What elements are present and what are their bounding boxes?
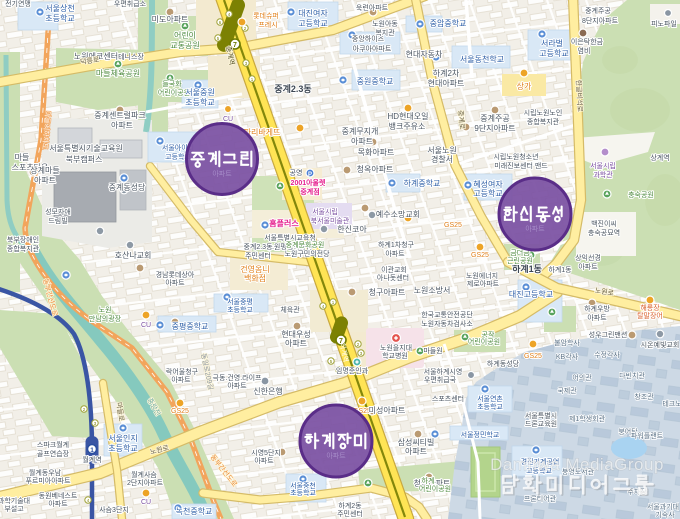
svg-text:서울중천: 서울중천 [290, 481, 316, 490]
svg-text:삼성씨티빌: 삼성씨티빌 [398, 437, 435, 447]
svg-text:서라벌: 서라벌 [541, 38, 563, 48]
svg-text:상익선경: 상익선경 [575, 253, 601, 262]
svg-text:아파트: 아파트 [165, 278, 185, 287]
svg-text:기숙사: 기숙사 [655, 510, 675, 519]
svg-text:만남의광장: 만남의광장 [89, 314, 122, 323]
svg-text:동원베네스트: 동원베네스트 [39, 491, 78, 500]
svg-text:서울연촌: 서울연촌 [477, 394, 503, 403]
svg-text:프레시: 프레시 [258, 20, 277, 29]
svg-text:제1학생회관: 제1학생회관 [569, 414, 606, 423]
svg-text:월계사슴: 월계사슴 [131, 470, 157, 479]
svg-text:아파트: 아파트 [48, 499, 68, 508]
svg-text:피노파일: 피노파일 [651, 19, 677, 28]
svg-text:아파트: 아파트 [578, 262, 598, 271]
svg-text:백진이씨: 백진이씨 [591, 219, 617, 228]
svg-text:파워플랜트: 파워플랜트 [631, 431, 664, 440]
svg-text:미성아파트: 미성아파트 [369, 405, 406, 415]
svg-text:한국교통안전공단: 한국교통안전공단 [421, 310, 473, 319]
svg-text:드론교육원: 드론교육원 [525, 419, 557, 428]
svg-text:P: P [308, 172, 312, 178]
svg-text:북부장애인: 북부장애인 [7, 235, 39, 244]
svg-text:전기연맹: 전기연맹 [5, 0, 31, 8]
svg-text:마들원: 마들원 [423, 346, 442, 355]
svg-text:사슴3단지: 사슴3단지 [99, 505, 129, 514]
svg-text:혜성여자: 혜성여자 [473, 179, 503, 189]
svg-text:중계점: 중계점 [300, 187, 319, 196]
svg-text:아파트: 아파트 [525, 224, 545, 233]
svg-text:어린이: 어린이 [174, 30, 196, 40]
svg-text:극동.건영.라이프: 극동.건영.라이프 [213, 373, 263, 382]
svg-text:대진고등학교: 대진고등학교 [509, 289, 553, 299]
svg-text:녹천중학교: 녹천중학교 [176, 506, 213, 516]
svg-text:7: 7 [233, 42, 237, 49]
svg-text:과학관: 과학관 [593, 170, 613, 179]
svg-text:KB각사: KB각사 [556, 352, 579, 361]
svg-text:스포츠센터: 스포츠센터 [432, 394, 464, 403]
svg-text:중암중학교: 중암중학교 [430, 18, 467, 28]
svg-text:종합복지관: 종합복지관 [527, 117, 560, 126]
svg-text:시영5단지: 시영5단지 [251, 448, 281, 457]
svg-text:들국화: 들국화 [162, 80, 182, 88]
svg-text:수정각사: 수정각사 [594, 350, 620, 359]
svg-text:종합복지관: 종합복지관 [7, 244, 40, 253]
svg-text:충숙공원: 충숙공원 [628, 190, 654, 199]
svg-text:서울과기대: 서울과기대 [647, 502, 679, 511]
svg-text:백화점: 백화점 [244, 273, 266, 283]
svg-text:주민센터: 주민센터 [245, 251, 271, 260]
svg-text:초등학교: 초등학교 [227, 305, 253, 314]
svg-text:GS25: GS25 [524, 353, 542, 360]
svg-text:노원소방서: 노원소방서 [414, 285, 451, 295]
svg-text:청구아파트: 청구아파트 [369, 287, 406, 297]
svg-text:아파트: 아파트 [405, 446, 427, 456]
svg-text:이은탁한금: 이은탁한금 [571, 37, 604, 46]
svg-text:고등학교: 고등학교 [298, 18, 327, 28]
svg-text:CU: CU [223, 116, 233, 123]
svg-text:서울중평: 서울중평 [227, 297, 253, 306]
svg-text:서울특별시기술교육원: 서울특별시기술교육원 [49, 143, 123, 153]
svg-text:초등학교: 초등학교 [185, 97, 214, 107]
svg-text:1: 1 [90, 447, 94, 454]
svg-text:미래진보센터 맨드: 미래진보센터 맨드 [494, 161, 548, 170]
svg-text:마들체육공원: 마들체육공원 [96, 68, 140, 78]
svg-text:아파트: 아파트 [326, 451, 346, 460]
svg-text:중평중학교: 중평중학교 [172, 321, 209, 331]
svg-text:중계문화공원: 중계문화공원 [286, 240, 325, 249]
svg-text:호산나교회: 호산나교회 [115, 250, 152, 260]
svg-text:하계: 하계 [422, 476, 435, 485]
svg-text:노원을지대: 노원을지대 [380, 343, 412, 352]
svg-text:Damhwa MediaGroup: Damhwa MediaGroup [490, 455, 664, 474]
svg-text:근린공원: 근린공원 [507, 256, 533, 265]
svg-text:CU: CU [141, 322, 151, 329]
svg-text:욱련아파트: 욱련아파트 [356, 3, 389, 12]
svg-text:부설고: 부설고 [4, 505, 24, 513]
svg-text:아파트: 아파트 [254, 456, 274, 465]
svg-text:프론티어관: 프론티어관 [524, 494, 557, 503]
svg-text:아파트: 아파트 [227, 381, 247, 390]
svg-text:아나돗센터: 아나돗센터 [377, 273, 409, 282]
svg-text:서울특별시교육청: 서울특별시교육청 [264, 233, 316, 242]
svg-text:중계센트럴파크: 중계센트럴파크 [94, 110, 146, 120]
svg-text:하계1동: 하계1동 [548, 265, 572, 274]
svg-text:충숙공묘역: 충숙공묘역 [588, 228, 620, 237]
svg-text:시립노원노인: 시립노원노인 [524, 108, 563, 117]
svg-text:고등학교: 고등학교 [539, 48, 568, 58]
svg-text:8단지아파트: 8단지아파트 [582, 16, 619, 25]
svg-text:시립노원청소년: 시립노원청소년 [493, 152, 538, 161]
svg-text:서울정민학교: 서울정민학교 [461, 430, 500, 439]
svg-text:이관교회: 이관교회 [381, 265, 407, 274]
svg-text:해룡장: 해룡장 [640, 303, 660, 312]
svg-text:중계2.3동: 중계2.3동 [274, 83, 311, 94]
svg-text:아파트: 아파트 [285, 338, 307, 348]
svg-text:창조관: 창조관 [634, 392, 654, 401]
svg-text:공작: 공작 [482, 330, 495, 339]
svg-text:한신코아: 한신코아 [337, 224, 367, 234]
svg-text:성우그린맨션: 성우그린맨션 [589, 330, 628, 339]
svg-text:9단지아파트: 9단지아파트 [474, 123, 515, 133]
svg-text:월계동우남: 월계동우남 [29, 468, 62, 477]
svg-text:아파트: 아파트 [34, 175, 56, 185]
svg-text:현대자동차: 현대자동차 [406, 50, 443, 59]
svg-text:스파크월계: 스파크월계 [37, 440, 69, 449]
svg-text:GS25: GS25 [471, 252, 489, 259]
svg-text:중계주공: 중계주공 [585, 6, 611, 15]
svg-text:노원에너지: 노원에너지 [466, 271, 498, 280]
svg-text:과학기술대: 과학기술대 [0, 496, 30, 505]
svg-text:임명준인과: 임명준인과 [336, 366, 369, 375]
svg-text:GS25: GS25 [444, 222, 462, 229]
svg-text:하계우방: 하계우방 [584, 304, 610, 313]
svg-text:하계2차: 하계2차 [433, 68, 460, 78]
svg-text:아파트: 아파트 [587, 313, 607, 322]
svg-text:청옥아파트: 청옥아파트 [357, 164, 394, 174]
svg-text:노원: 노원 [99, 305, 112, 314]
svg-text:어린이공원: 어린이공원 [419, 484, 451, 493]
svg-text:월계역: 월계역 [82, 455, 101, 464]
svg-text:학교병원: 학교병원 [382, 351, 408, 360]
svg-text:상가: 상가 [517, 81, 532, 91]
svg-text:서울하계시영: 서울하계시영 [424, 367, 463, 376]
svg-text:노원구민의전당: 노원구민의전당 [284, 249, 330, 258]
svg-text:상계마들: 상계마들 [30, 165, 59, 175]
svg-text:중계주공: 중계주공 [480, 113, 509, 123]
svg-text:서울노원: 서울노원 [427, 146, 456, 155]
svg-text:체육관: 체육관 [280, 305, 300, 314]
svg-text:노원자동차검사소: 노원자동차검사소 [421, 319, 473, 328]
svg-text:초등학교: 초등학교 [45, 13, 74, 23]
svg-text:경남롯데상아: 경남롯데상아 [156, 270, 195, 279]
svg-text:현대우성: 현대우성 [281, 330, 310, 339]
svg-text:하계2동: 하계2동 [338, 501, 362, 510]
svg-text:시온예빛교회: 시온예빛교회 [641, 340, 680, 349]
svg-text:서울인지: 서울인지 [108, 433, 137, 443]
svg-text:중계동성당: 중계동성당 [109, 182, 146, 192]
svg-text:2단지아파트: 2단지아파트 [127, 478, 164, 487]
svg-text:건영옴니: 건영옴니 [240, 264, 269, 274]
svg-text:중계무지개: 중계무지개 [342, 126, 379, 136]
svg-text:다빈치관: 다빈치관 [619, 371, 645, 380]
svg-text:초등학교: 초등학교 [477, 402, 503, 411]
svg-text:제로아파트: 제로아파트 [467, 279, 500, 288]
svg-text:중계2.3동: 중계2.3동 [243, 242, 273, 251]
svg-text:초등학교: 초등학교 [290, 488, 316, 497]
svg-text:교통공원: 교통공원 [170, 41, 199, 50]
svg-text:예수소망교회: 예수소망교회 [376, 209, 420, 219]
svg-text:푸르미아아파트: 푸르미아아파트 [25, 476, 71, 485]
svg-text:롯데슈퍼: 롯데슈퍼 [253, 11, 279, 20]
svg-text:드림빌: 드림빌 [48, 217, 67, 225]
svg-text:현대아파트: 현대아파트 [428, 78, 465, 88]
svg-text:어의관: 어의관 [572, 373, 592, 382]
svg-text:홈플러스: 홈플러스 [269, 218, 299, 228]
svg-text:노원아동: 노원아동 [372, 19, 398, 28]
svg-text:공영: 공영 [290, 168, 303, 177]
svg-text:아파트: 아파트 [171, 375, 191, 384]
svg-text:골프연습장: 골프연습장 [37, 449, 70, 458]
svg-text:북부캠퍼스: 북부캠퍼스 [66, 154, 103, 164]
svg-text:테니스장: 테니스장 [118, 52, 144, 61]
svg-text:대진여자: 대진여자 [298, 8, 328, 18]
svg-text:미도아파트: 미도아파트 [152, 14, 189, 24]
svg-text:아파트: 아파트 [111, 120, 133, 130]
svg-text:서울특별시: 서울특별시 [525, 411, 557, 420]
svg-text:국제관: 국제관 [557, 386, 577, 395]
svg-text:목화아파트: 목화아파트 [358, 147, 395, 157]
svg-text:아파트: 아파트 [385, 249, 405, 258]
svg-text:GS25: GS25 [171, 408, 189, 415]
svg-text:락어울청구: 락어울청구 [166, 367, 199, 376]
svg-text:신한은행: 신한은행 [253, 386, 282, 396]
svg-text:우편취급소: 우편취급소 [114, 0, 147, 8]
svg-text:북서울미술관: 북서울미술관 [311, 216, 350, 225]
svg-text:아파트: 아파트 [351, 136, 373, 146]
svg-text:주민센터: 주민센터 [337, 509, 363, 518]
svg-text:상계역: 상계역 [650, 153, 669, 162]
svg-text:하계동성당: 하계동성당 [487, 359, 520, 368]
svg-text:성모자애: 성모자애 [45, 207, 71, 216]
svg-text:복지관: 복지관 [375, 28, 395, 37]
svg-text:2001아울렛: 2001아울렛 [291, 178, 326, 187]
svg-text:초등학교: 초등학교 [108, 443, 137, 453]
svg-text:하계중학교: 하계중학교 [404, 178, 441, 188]
svg-text:서울시립: 서울시립 [312, 207, 338, 216]
svg-text:경찰서: 경찰서 [431, 154, 453, 164]
svg-text:중원중학교: 중원중학교 [357, 76, 394, 86]
svg-text:서울동천학교: 서울동천학교 [460, 54, 504, 64]
svg-text:아쿠아아파트: 아쿠아아파트 [353, 44, 392, 53]
svg-text:서울중원: 서울중원 [185, 88, 214, 97]
svg-text:HD현대오일: HD현대오일 [388, 112, 429, 121]
svg-text:테크노: 테크노 [662, 400, 680, 408]
svg-text:뱅크주유소: 뱅크주유소 [389, 121, 426, 131]
svg-text:CU: CU [141, 499, 151, 506]
svg-text:서울시립: 서울시립 [590, 161, 616, 170]
svg-text:하계1차청구: 하계1차청구 [378, 240, 415, 249]
svg-text:어린이공원: 어린이공원 [468, 337, 500, 346]
svg-text:아파트: 아파트 [212, 169, 232, 178]
svg-text:염비: 염비 [578, 46, 591, 55]
svg-text:서울상천: 서울상천 [45, 3, 74, 13]
svg-text:불암학사: 불암학사 [554, 338, 580, 347]
svg-text:우편취급국: 우편취급국 [424, 375, 457, 384]
svg-text:마들: 마들 [15, 153, 30, 162]
svg-text:탈말장어: 탈말장어 [637, 311, 663, 320]
svg-text:고등학교: 고등학교 [473, 188, 502, 198]
